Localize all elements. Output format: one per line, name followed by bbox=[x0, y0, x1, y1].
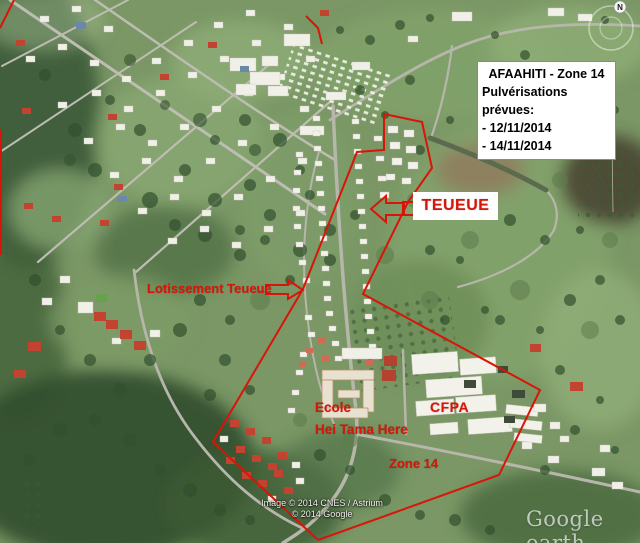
imagery-attribution: Image © 2014 CNES / Astrium © 2014 Googl… bbox=[232, 498, 412, 520]
info-box-subtitle: Pulvérisations prévues: bbox=[482, 83, 611, 119]
ecole-label-line1: Ecole bbox=[315, 400, 408, 415]
edge-boundary-fragment bbox=[0, 0, 14, 28]
info-box-title: AFAAHITI - Zone 14 bbox=[482, 65, 611, 83]
zone-info-box: AFAAHITI - Zone 14 Pulvérisations prévue… bbox=[477, 61, 616, 160]
lotissement-teueue-label: Lotissement Teueue bbox=[147, 281, 272, 296]
attribution-line1: Image © 2014 CNES / Astrium bbox=[232, 498, 412, 509]
google-earth-view[interactable]: AFAAHITI - Zone 14 Pulvérisations prévue… bbox=[0, 0, 640, 543]
google-earth-watermark: Google earth bbox=[526, 507, 640, 543]
cfpa-label: CFPA bbox=[430, 399, 469, 415]
zone14-boundary-polygon bbox=[213, 114, 540, 540]
ecole-label-line2: Hei Tama Here bbox=[315, 422, 408, 437]
ecole-label: Ecole Hei Tama Here bbox=[315, 400, 408, 437]
edge-boundary-fragment bbox=[306, 16, 322, 44]
info-box-date-1: - 12/11/2014 bbox=[482, 119, 611, 137]
compass-inner-ring[interactable] bbox=[600, 17, 622, 39]
compass-navigation[interactable]: N bbox=[586, 0, 640, 56]
info-box-date-2: - 14/11/2014 bbox=[482, 137, 611, 155]
compass-outer-ring[interactable] bbox=[589, 6, 633, 50]
zone14-label: Zone 14 bbox=[389, 456, 438, 471]
teueue-label: TEUEUE bbox=[413, 192, 498, 220]
attribution-line2: © 2014 Google bbox=[232, 509, 412, 520]
compass-north-label: N bbox=[617, 3, 623, 12]
